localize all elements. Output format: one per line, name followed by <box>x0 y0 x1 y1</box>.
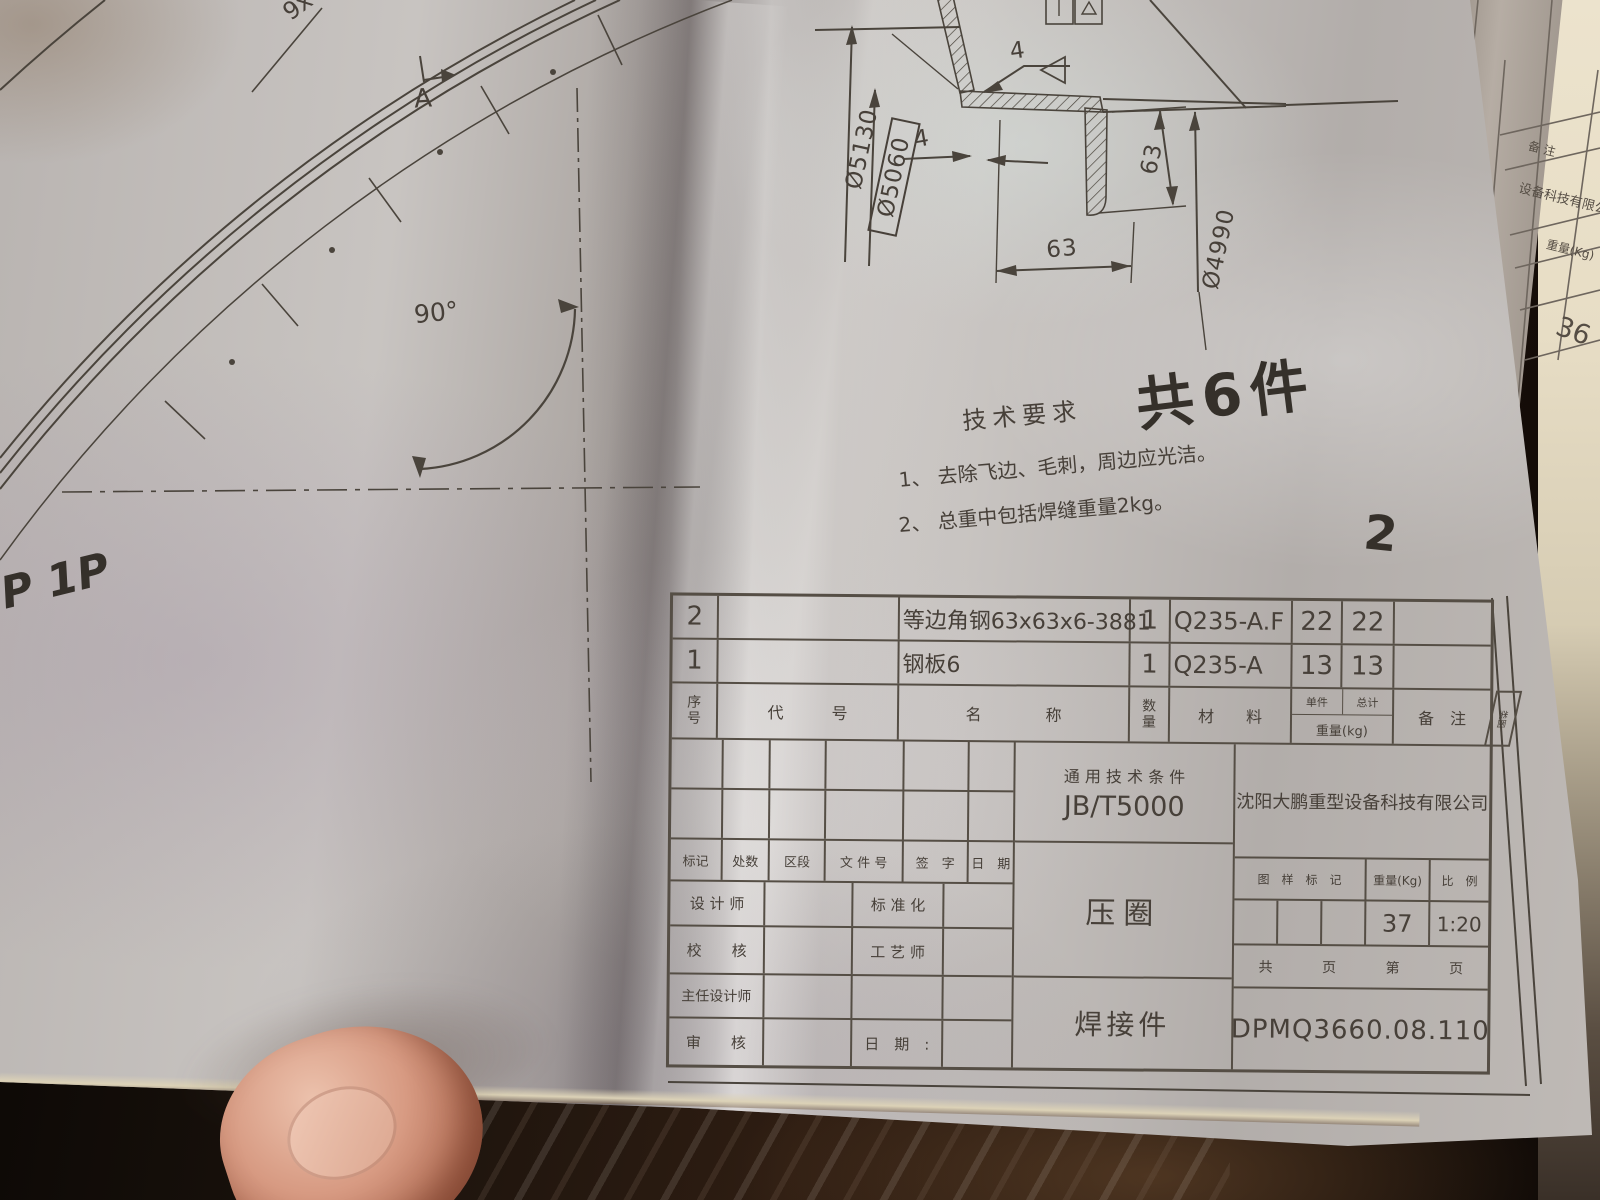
bom-name: 等边角钢63x63x6-3881 <box>900 597 1131 641</box>
empty-cell <box>671 789 723 837</box>
weight-header: 重量(Kg) <box>1366 860 1430 901</box>
weight-value: 37 <box>1366 902 1430 946</box>
signature-cell <box>943 1021 1011 1068</box>
signature-cell <box>944 929 1012 976</box>
designer-label: 设 计 师 <box>670 881 766 925</box>
signature-cell <box>766 882 854 926</box>
stamp-cell <box>1234 900 1278 943</box>
empty-cell <box>723 790 771 838</box>
bom-seq: 1 <box>672 639 718 681</box>
bom-header-row: 序 号 代 号 名 称 数 量 材 料 单件 总计 重量(kg) <box>672 683 1490 746</box>
signature-cell <box>765 927 853 974</box>
bom-header-qty: 数 量 <box>1130 687 1170 741</box>
empty-cell <box>770 790 826 838</box>
designer-row: 设 计 师 标 准 化 <box>670 881 1012 929</box>
checker-row: 校 核 工 艺 师 <box>670 926 1012 977</box>
bom-header-total-weight: 总计 <box>1343 689 1393 714</box>
bom-total-weight: 22 <box>1343 601 1395 643</box>
angle-dimension: 90° <box>413 296 460 329</box>
bom-remark <box>1395 602 1491 645</box>
empty-cell <box>723 740 771 788</box>
empty-cell <box>826 741 904 790</box>
docno-label: 文 件 号 <box>826 841 904 882</box>
signature-cell <box>944 977 1012 1020</box>
bom-header-seq: 序 号 <box>672 683 718 737</box>
bom-header-remark: 备 注 <box>1394 690 1490 745</box>
empty-cell <box>969 792 1013 840</box>
signature-section: 标记 处数 区段 文 件 号 签 字 日 期 设 计 师 标 准 化 <box>669 739 1016 1067</box>
general-spec-cell: 通 用 技 术 条 件 JB/T5000 <box>1015 742 1234 844</box>
bom-header-code: 代 号 <box>718 684 899 740</box>
stamp-cell <box>1278 901 1322 944</box>
general-spec-value: JB/T5000 <box>1064 790 1185 822</box>
section-view-label: A <box>413 83 433 114</box>
empty-cell <box>826 791 904 840</box>
handwritten-mark-2: 2 <box>1361 504 1400 563</box>
process-label: 工 艺 师 <box>853 928 945 975</box>
bom-name: 钢板6 <box>899 641 1130 685</box>
bom-header-name: 名 称 <box>899 685 1130 741</box>
bom-unit-weight: 13 <box>1292 645 1342 687</box>
bom-header-material: 材 料 <box>1170 688 1292 743</box>
leg-horizontal-dimension: 63 <box>1033 234 1091 265</box>
pages-current-unit: 页 <box>1449 958 1463 978</box>
empty-cell <box>970 742 1014 790</box>
sign-label: 签 字 <box>903 841 969 882</box>
revision-empty-row <box>671 739 1013 792</box>
bom-row-2: 2 等边角钢63x63x6-3881 1 Q235-A.F 22 22 <box>673 595 1491 646</box>
title-block-and-bom: 2 等边角钢63x63x6-3881 1 Q235-A.F 22 22 1 钢板… <box>666 592 1494 1074</box>
empty-cell <box>904 791 970 840</box>
company-section: 沈阳大鹏重型设备科技有限公司 图 样 标 记 重量(Kg) 比 例 37 1:2… <box>1233 744 1490 1071</box>
bom-unit-weight: 22 <box>1293 601 1343 643</box>
bom-header-weight-unit: 重量(kg) <box>1316 715 1368 743</box>
qty-char-2: 量 <box>1142 715 1156 731</box>
seq-char-2: 号 <box>687 711 701 727</box>
ring-arcs <box>0 0 732 560</box>
mark-label: 标记 <box>671 839 723 879</box>
chief-designer-label: 主任设计师 <box>669 974 765 1017</box>
empty-label <box>852 976 944 1019</box>
count-label: 处数 <box>722 840 770 880</box>
centerlines-and-angle <box>62 56 700 782</box>
drawing-number: DPMQ3660.08.110 <box>1233 988 1488 1071</box>
bom-code <box>719 596 900 640</box>
date-label: 日 期 <box>969 842 1013 882</box>
bom-material: Q235-A <box>1170 644 1292 687</box>
pages-total-unit: 页 <box>1322 957 1336 977</box>
checker-label: 校 核 <box>670 926 766 973</box>
scale-header: 比 例 <box>1430 860 1488 901</box>
photo-of-engineering-drawing: 备 注 设备科技有限公 重量(Kg) 36 <box>0 0 1600 1200</box>
bom-corner-label: 类图 <box>1495 710 1512 728</box>
part-name: 压圈 <box>1014 842 1233 979</box>
chief-designer-row: 主任设计师 <box>669 974 1011 1021</box>
bom-total-weight: 13 <box>1342 645 1394 687</box>
stamp-mark-label: 图 样 标 记 <box>1234 858 1366 899</box>
stamp-value-row: 37 1:20 <box>1234 900 1488 947</box>
pages-current-label: 第 <box>1386 957 1400 977</box>
part-info-section: 通 用 技 术 条 件 JB/T5000 压圈 焊接件 <box>1013 742 1236 1069</box>
title-block-body: 标记 处数 区段 文 件 号 签 字 日 期 设 计 师 标 准 化 <box>669 739 1490 1071</box>
qty-char-1: 数 <box>1142 698 1156 714</box>
bom-qty: 1 <box>1131 599 1171 641</box>
bom-row-1: 1 钢板6 1 Q235-A 13 13 <box>672 639 1490 690</box>
empty-cell <box>904 741 970 790</box>
standards-label: 标 准 化 <box>853 883 945 927</box>
bom-header-weight-group: 单件 总计 重量(kg) <box>1292 689 1394 744</box>
general-spec-label: 通 用 技 术 条 件 <box>1064 762 1186 787</box>
stamp-header-row: 图 样 标 记 重量(Kg) 比 例 <box>1234 858 1488 902</box>
revision-header-row: 标记 处数 区段 文 件 号 签 字 日 期 <box>671 839 1013 884</box>
bom-material: Q235-A.F <box>1171 600 1293 643</box>
bom-seq: 2 <box>673 595 719 637</box>
part-kind: 焊接件 <box>1013 977 1232 1069</box>
signature-cell <box>764 1019 852 1066</box>
company-name: 沈阳大鹏重型设备科技有限公司 <box>1235 744 1490 860</box>
approver-label: 审 核 <box>669 1018 765 1065</box>
bom-qty: 1 <box>1130 643 1170 685</box>
pages-total-label: 共 <box>1259 956 1273 976</box>
zone-label: 区段 <box>770 840 826 880</box>
empty-cell <box>771 740 827 788</box>
pages-row: 共 页 第 页 <box>1234 945 1488 990</box>
stamp-cell <box>1322 901 1366 944</box>
seq-char-1: 序 <box>687 694 701 710</box>
bom-remark <box>1394 646 1490 689</box>
scale-value: 1:20 <box>1430 902 1488 946</box>
signature-cell <box>765 975 853 1018</box>
bom-code <box>718 640 899 684</box>
bom-header-unit-weight: 单件 <box>1292 689 1343 714</box>
revision-empty-row <box>671 789 1013 842</box>
signature-cell <box>945 884 1013 928</box>
approver-row: 审 核 日 期 : <box>669 1018 1011 1067</box>
date-field-label: 日 期 : <box>852 1020 944 1067</box>
empty-cell <box>671 739 723 787</box>
